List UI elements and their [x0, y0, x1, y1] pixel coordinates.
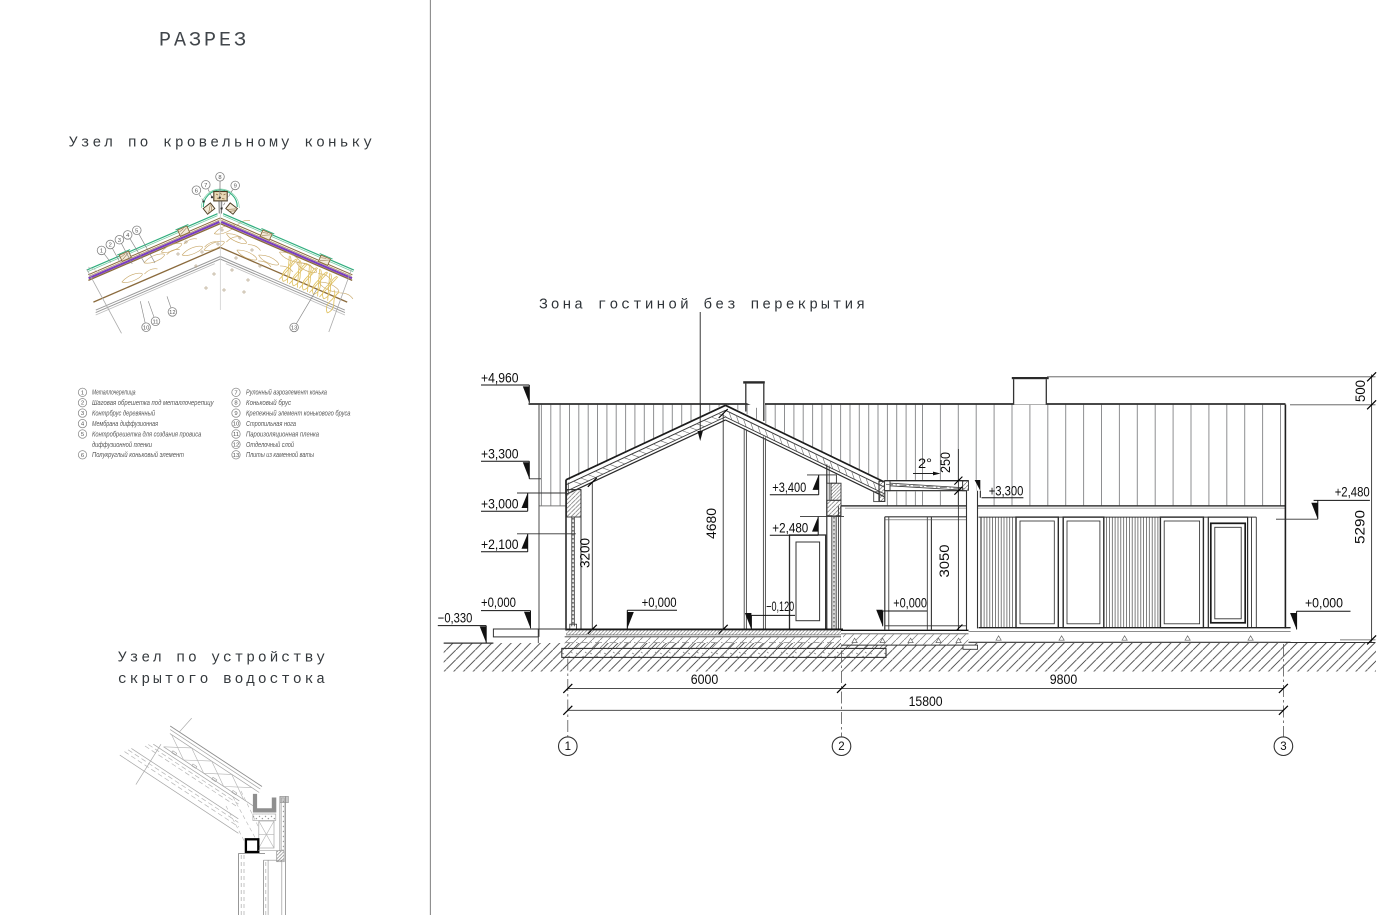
svg-text:9: 9 — [234, 411, 237, 417]
svg-text:Отделочный слой: Отделочный слой — [246, 441, 294, 449]
svg-text:7: 7 — [234, 390, 237, 396]
svg-text:Стропильная нога: Стропильная нога — [246, 420, 296, 428]
svg-text:2: 2 — [838, 741, 844, 753]
svg-text:1: 1 — [81, 390, 84, 396]
svg-text:−0,120: −0,120 — [766, 599, 794, 614]
svg-text:1: 1 — [100, 249, 103, 255]
svg-text:6000: 6000 — [691, 672, 719, 687]
svg-text:Контробрешетка для создания пр: Контробрешетка для создания провиса — [92, 430, 201, 438]
svg-text:10: 10 — [143, 325, 149, 331]
svg-text:2: 2 — [109, 243, 112, 249]
svg-text:+0,000: +0,000 — [893, 596, 927, 611]
svg-text:11: 11 — [233, 432, 239, 438]
svg-text:11: 11 — [152, 319, 158, 325]
svg-text:+3,000: +3,000 — [481, 496, 519, 511]
svg-text:+2,480: +2,480 — [772, 521, 808, 536]
svg-text:2°: 2° — [918, 456, 932, 471]
svg-text:+3,300: +3,300 — [481, 446, 519, 461]
svg-text:+4,960: +4,960 — [481, 371, 519, 386]
svg-text:13: 13 — [291, 326, 297, 332]
svg-text:1: 1 — [565, 741, 571, 753]
svg-text:3: 3 — [1280, 741, 1286, 753]
svg-text:Мембрана диффузионная: Мембрана диффузионная — [92, 420, 158, 428]
svg-text:диффузионной пленки: диффузионной пленки — [92, 441, 152, 449]
svg-text:7: 7 — [204, 183, 207, 189]
svg-text:5: 5 — [135, 228, 138, 234]
svg-text:+0,000: +0,000 — [481, 595, 516, 610]
svg-text:−0,330: −0,330 — [438, 610, 473, 625]
svg-text:Плиты из каменной ваты: Плиты из каменной ваты — [246, 451, 315, 459]
svg-text:3050: 3050 — [937, 545, 952, 578]
svg-text:Контрбрус деревянный: Контрбрус деревянный — [92, 410, 155, 418]
svg-text:Шаговая обрешетка под металлоч: Шаговая обрешетка под металлочерепицу — [92, 399, 214, 407]
svg-text:+2,480: +2,480 — [1335, 485, 1370, 500]
svg-text:15800: 15800 — [909, 694, 943, 709]
svg-text:+0,000: +0,000 — [1305, 596, 1343, 611]
svg-text:500: 500 — [1353, 380, 1368, 402]
svg-text:Металлочерепица: Металлочерепица — [92, 389, 136, 397]
svg-text:Рулонный аэроэлемент конька: Рулонный аэроэлемент конька — [246, 389, 327, 397]
svg-text:3200: 3200 — [578, 538, 593, 568]
svg-text:Пароизоляционная пленка: Пароизоляционная пленка — [246, 430, 319, 438]
svg-text:Коньковый брус: Коньковый брус — [246, 399, 291, 407]
svg-text:4680: 4680 — [704, 508, 719, 539]
svg-text:+0,000: +0,000 — [642, 595, 677, 610]
svg-text:2: 2 — [81, 401, 84, 407]
svg-text:8: 8 — [218, 175, 221, 181]
svg-text:13: 13 — [233, 453, 240, 459]
svg-text:3: 3 — [118, 238, 121, 244]
svg-text:12: 12 — [233, 442, 240, 448]
svg-text:Крепежный элемент конькового б: Крепежный элемент конькового бруса — [246, 410, 351, 418]
svg-text:12: 12 — [169, 310, 175, 316]
svg-text:6: 6 — [195, 188, 198, 194]
svg-text:9800: 9800 — [1050, 672, 1078, 687]
svg-text:5290: 5290 — [1353, 510, 1368, 544]
svg-text:Полукруглый коньковый элемент: Полукруглый коньковый элемент — [92, 451, 184, 459]
svg-text:Р А З Р Е З: Р А З Р Е З — [159, 30, 246, 53]
svg-text:+2,100: +2,100 — [481, 537, 519, 552]
svg-text:10: 10 — [233, 422, 240, 428]
svg-text:250: 250 — [938, 452, 953, 473]
svg-text:+3,300: +3,300 — [989, 484, 1024, 499]
svg-text:9: 9 — [234, 184, 237, 190]
svg-text:+3,400: +3,400 — [772, 480, 806, 495]
